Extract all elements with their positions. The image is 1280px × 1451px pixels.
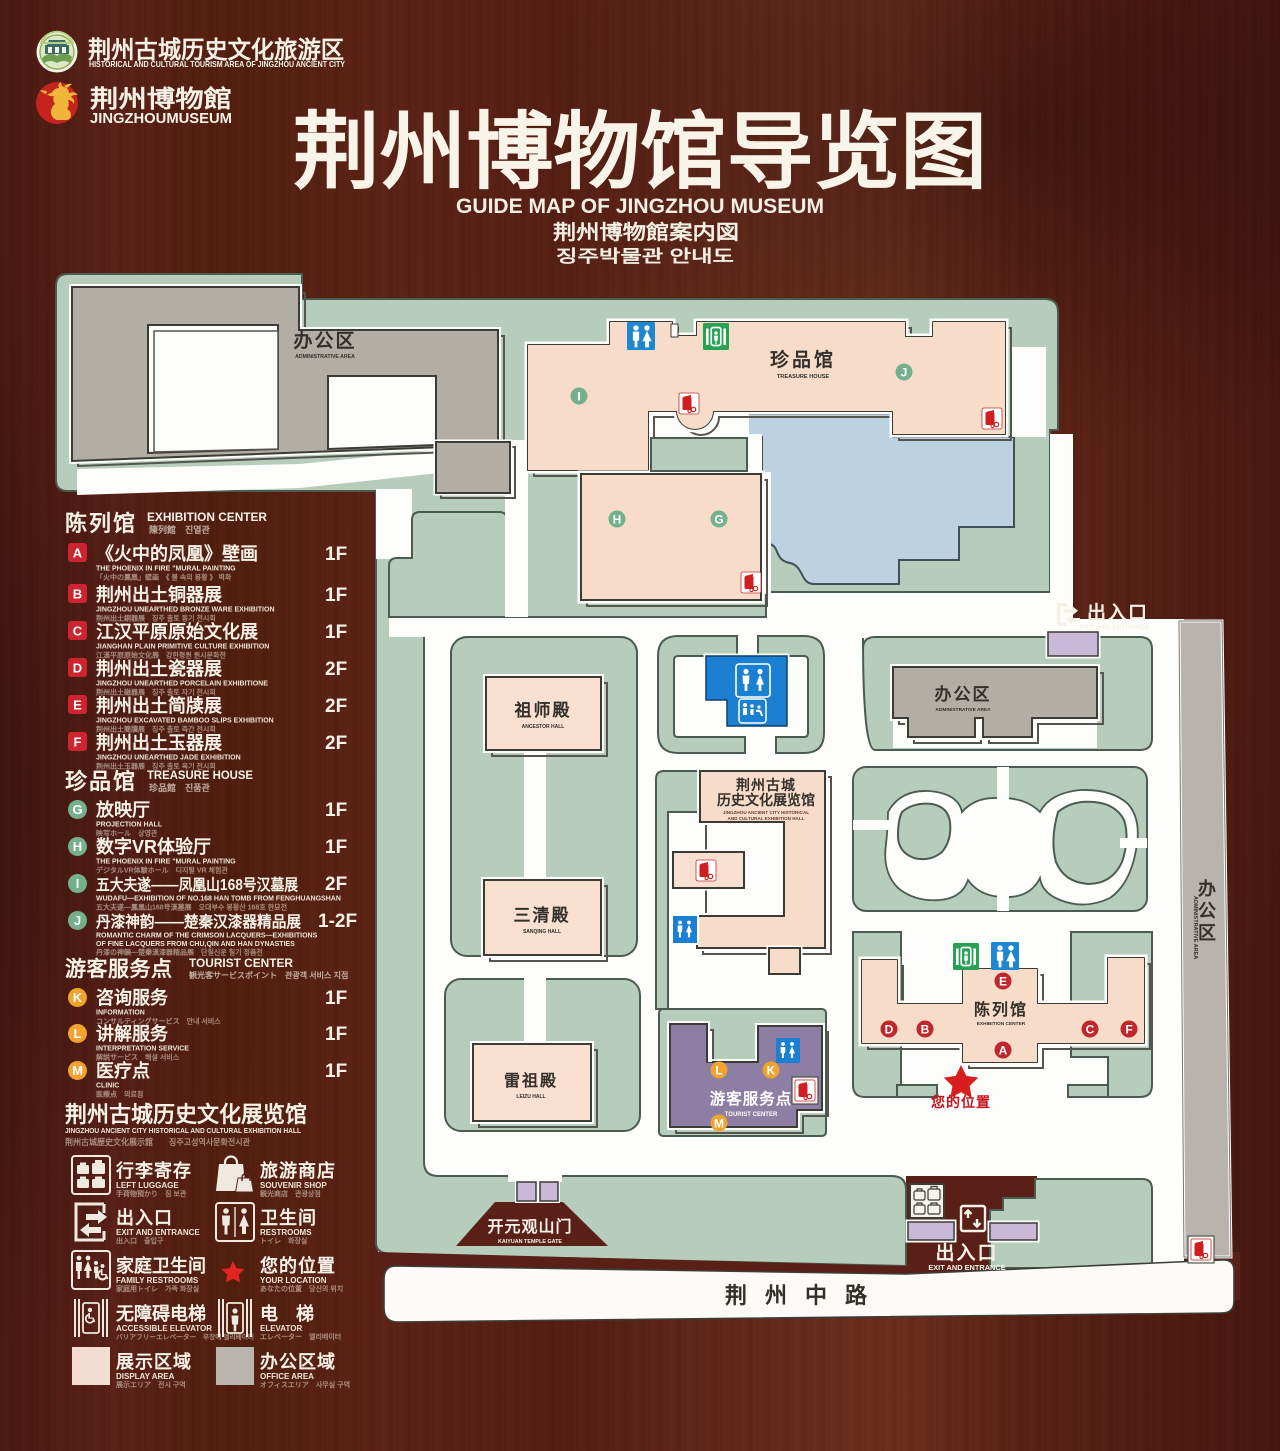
svg-text:丹漆神韵——楚秦汉漆器精品展: 丹漆神韵——楚秦汉漆器精品展 bbox=[96, 912, 301, 931]
svg-text:J: J bbox=[901, 366, 908, 380]
svg-text:2F: 2F bbox=[325, 696, 347, 717]
svg-text:1F: 1F bbox=[325, 622, 347, 643]
svg-text:JINGZHOU UNEARTHED PORCELAIN E: JINGZHOU UNEARTHED PORCELAIN EXHIBITIONE bbox=[96, 681, 268, 688]
svg-text:五大夫遂—鳳凰山168号漢墓展 오대부수 봉황산 168호: 五大夫遂—鳳凰山168号漢墓展 오대부수 봉황산 168호 한묘전 bbox=[96, 903, 287, 912]
svg-text:咨询服务: 咨询服务 bbox=[96, 987, 169, 1008]
svg-text:家庭用トイレ 가족 화장실: 家庭用トイレ 가족 화장실 bbox=[116, 1284, 199, 1293]
svg-text:THE PHOENIX IN FIRE "MURAL PAI: THE PHOENIX IN FIRE "MURAL PAINTING bbox=[96, 859, 236, 866]
svg-text:SOUVENIR SHOP: SOUVENIR SHOP bbox=[260, 1181, 327, 1190]
svg-text:荆州出土玉器展: 荆州出土玉器展 bbox=[96, 732, 223, 753]
svg-text:1F: 1F bbox=[325, 544, 347, 565]
svg-text:ACCESSIBLE ELEVATOR: ACCESSIBLE ELEVATOR bbox=[116, 1324, 212, 1333]
svg-text:A: A bbox=[999, 1044, 1008, 1058]
svg-text:D: D bbox=[73, 661, 82, 676]
svg-text:TREASURE HOUSE: TREASURE HOUSE bbox=[777, 374, 829, 380]
svg-text:游客服务点: 游客服务点 bbox=[65, 957, 173, 981]
svg-text:PROJECTION HALL: PROJECTION HALL bbox=[96, 822, 163, 829]
svg-text:K: K bbox=[767, 1064, 776, 1078]
svg-text:医疗点: 医疗点 bbox=[96, 1060, 150, 1081]
svg-text:荆州古城歴史文化展示館 징주고성역사문화전시관: 荆州古城歴史文化展示館 징주고성역사문화전시관 bbox=[65, 1137, 250, 1147]
svg-text:オフィスエリア 사무실 구역: オフィスエリア 사무실 구역 bbox=[260, 1380, 350, 1389]
svg-text:出入口: 出入口 bbox=[1087, 601, 1149, 624]
svg-text:DISPLAY AREA: DISPLAY AREA bbox=[116, 1372, 175, 1381]
svg-text:JINGZHOUMUSEUM: JINGZHOUMUSEUM bbox=[90, 111, 232, 127]
svg-text:CLINIC: CLINIC bbox=[96, 1083, 119, 1090]
svg-text:区: 区 bbox=[1198, 923, 1216, 943]
svg-text:JIANGHAN PLAIN PRIMITIVE CULTU: JIANGHAN PLAIN PRIMITIVE CULTURE EXHIBIT… bbox=[96, 644, 269, 651]
svg-text:出入口 출입구: 出入口 출입구 bbox=[116, 1236, 164, 1245]
svg-text:游客服务点: 游客服务点 bbox=[710, 1089, 793, 1108]
svg-text:办公区: 办公区 bbox=[935, 684, 992, 704]
svg-text:1F: 1F bbox=[325, 988, 347, 1009]
svg-text:INTERPRETATION SERVICE: INTERPRETATION SERVICE bbox=[96, 1046, 189, 1053]
svg-text:あなたの位置 당신의 위치: あなたの位置 당신의 위치 bbox=[260, 1284, 343, 1293]
svg-text:三清殿: 三清殿 bbox=[514, 905, 571, 925]
svg-text:D: D bbox=[885, 1023, 894, 1037]
svg-text:讲解服务: 讲解服务 bbox=[96, 1023, 169, 1044]
svg-text:EXIT AND ENTRANCE: EXIT AND ENTRANCE bbox=[116, 1228, 200, 1237]
svg-text:雷祖殿: 雷祖殿 bbox=[504, 1071, 558, 1090]
svg-text:観光商店 관광상점: 観光商店 관광상점 bbox=[260, 1189, 321, 1198]
svg-text:観光客サービスポイント 관광객 서비스 지점: 観光客サービスポイント 관광객 서비스 지점 bbox=[189, 970, 348, 980]
svg-text:行李寄存: 行李寄存 bbox=[115, 1160, 192, 1181]
svg-text:无障碍电梯: 无障碍电梯 bbox=[116, 1303, 206, 1324]
svg-text:历史文化展览馆: 历史文化展览馆 bbox=[717, 792, 815, 808]
svg-text:《火中的凤凰》壁画: 《火中的凤凰》壁画 bbox=[96, 543, 258, 564]
svg-text:INFORMATION: INFORMATION bbox=[96, 1010, 145, 1017]
svg-text:2F: 2F bbox=[325, 659, 347, 680]
svg-text:A: A bbox=[73, 546, 83, 561]
svg-text:开元观山门: 开元观山门 bbox=[487, 1217, 572, 1236]
svg-text:OFFICE AREA: OFFICE AREA bbox=[260, 1372, 314, 1381]
svg-text:JINGZHOU EXCAVATED BAMBOO SLIP: JINGZHOU EXCAVATED BAMBOO SLIPS EXHIBITI… bbox=[96, 718, 274, 725]
svg-text:2F: 2F bbox=[325, 874, 347, 895]
svg-text:YOUR LOCATION: YOUR LOCATION bbox=[260, 1276, 327, 1285]
svg-text:荆州古城历史文化展览馆: 荆州古城历史文化展览馆 bbox=[65, 1102, 307, 1127]
svg-text:G: G bbox=[714, 513, 723, 527]
svg-text:ROMANTIC CHARM OF THE CRIMSON: ROMANTIC CHARM OF THE CRIMSON LACQUERS—E… bbox=[96, 933, 318, 940]
svg-text:1F: 1F bbox=[325, 837, 347, 858]
svg-text:数字VR体验厅: 数字VR体验厅 bbox=[96, 836, 211, 857]
svg-text:「火中の鳳凰」壁画 《 불 속의 봉황 》 벽화: 「火中の鳳凰」壁画 《 불 속의 봉황 》 벽화 bbox=[96, 573, 232, 582]
svg-text:ANCESTOR HALL: ANCESTOR HALL bbox=[522, 724, 565, 730]
svg-text:EXHIBITION CENTER: EXHIBITION CENTER bbox=[977, 1021, 1026, 1027]
svg-text:K: K bbox=[73, 990, 83, 1005]
svg-text:B: B bbox=[73, 587, 82, 602]
svg-text:电 梯: 电 梯 bbox=[260, 1303, 314, 1324]
svg-text:珍品館 진품관: 珍品館 진품관 bbox=[149, 782, 211, 793]
svg-text:ELEVATOR: ELEVATOR bbox=[260, 1324, 302, 1333]
svg-text:TREASURE HOUSE: TREASURE HOUSE bbox=[147, 768, 253, 782]
svg-text:H: H bbox=[73, 839, 82, 854]
svg-text:陈列馆: 陈列馆 bbox=[65, 511, 137, 536]
svg-text:荆州博物館案内図: 荆州博物館案内図 bbox=[553, 220, 739, 244]
svg-text:FAMILY RESTROOMS: FAMILY RESTROOMS bbox=[116, 1276, 199, 1285]
svg-text:JINGZHOU ANCIENT CITY HISTORIC: JINGZHOU ANCIENT CITY HISTORICAL bbox=[723, 810, 809, 815]
svg-text:荆州古城: 荆州古城 bbox=[736, 777, 796, 793]
svg-text:EXHIBITION CENTER: EXHIBITION CENTER bbox=[147, 510, 267, 524]
svg-text:E: E bbox=[999, 975, 1007, 989]
svg-text:江汉平原原始文化展: 江汉平原原始文化展 bbox=[96, 621, 259, 642]
svg-text:E: E bbox=[73, 698, 82, 713]
svg-text:J: J bbox=[74, 913, 81, 928]
svg-text:荆州中路: 荆州中路 bbox=[725, 1283, 885, 1308]
svg-text:EXIT AND ENTRANCE: EXIT AND ENTRANCE bbox=[928, 1263, 1005, 1272]
svg-text:家庭卫生间: 家庭卫生间 bbox=[116, 1255, 206, 1276]
svg-text:卫生间: 卫生间 bbox=[260, 1207, 317, 1228]
svg-text:JINGZHOU UNEARTHED JADE EXHIBI: JINGZHOU UNEARTHED JADE EXHIBITION bbox=[96, 755, 241, 762]
svg-text:珍品馆: 珍品馆 bbox=[770, 348, 836, 371]
svg-text:放映厅: 放映厅 bbox=[95, 799, 150, 820]
svg-text:THE PHOENIX IN FIRE "MURAL PAI: THE PHOENIX IN FIRE "MURAL PAINTING bbox=[96, 566, 236, 573]
svg-text:ADMINISTRATIVE AREA: ADMINISTRATIVE AREA bbox=[935, 707, 991, 713]
svg-text:LEFT LUGGAGE: LEFT LUGGAGE bbox=[116, 1181, 179, 1190]
svg-text:展示エリア 전시 구역: 展示エリア 전시 구역 bbox=[115, 1380, 186, 1389]
svg-text:旅游商店: 旅游商店 bbox=[260, 1160, 336, 1181]
svg-text:荆州博物館: 荆州博物館 bbox=[90, 85, 232, 113]
svg-text:I: I bbox=[76, 876, 80, 891]
svg-text:EXIT AND ENTRANCE: EXIT AND ENTRANCE bbox=[1080, 624, 1150, 631]
svg-text:1F: 1F bbox=[325, 1061, 347, 1082]
svg-text:祖师殿: 祖师殿 bbox=[514, 700, 572, 720]
svg-text:エレベーター 엘리베이터: エレベーター 엘리베이터 bbox=[260, 1332, 341, 1341]
svg-text:M: M bbox=[714, 1117, 724, 1131]
svg-text:出入口: 出入口 bbox=[116, 1207, 173, 1228]
svg-text:公: 公 bbox=[1198, 901, 1216, 921]
svg-text:LEIZU HALL: LEIZU HALL bbox=[516, 1094, 545, 1100]
svg-text:展示区域: 展示区域 bbox=[116, 1351, 192, 1372]
svg-text:GUIDE MAP OF JINGZHOU MUSEUM: GUIDE MAP OF JINGZHOU MUSEUM bbox=[456, 194, 824, 218]
svg-text:L: L bbox=[74, 1026, 82, 1041]
svg-text:荆州博物馆导览图: 荆州博物馆导览图 bbox=[293, 105, 987, 199]
svg-text:ADMINISTRATIVE AREA: ADMINISTRATIVE AREA bbox=[295, 354, 355, 360]
svg-text:H: H bbox=[613, 513, 622, 527]
svg-text:F: F bbox=[1125, 1023, 1132, 1037]
svg-text:您的位置: 您的位置 bbox=[260, 1255, 336, 1276]
svg-text:办: 办 bbox=[1198, 878, 1216, 899]
svg-text:RESTROOMS: RESTROOMS bbox=[260, 1228, 312, 1237]
svg-text:1F: 1F bbox=[325, 1024, 347, 1045]
svg-text:M: M bbox=[72, 1063, 83, 1078]
svg-text:OF FINE LACQUERS FROM CHU,QIN: OF FINE LACQUERS FROM CHU,QIN AND HAN DY… bbox=[96, 941, 295, 948]
svg-text:陈列馆: 陈列馆 bbox=[974, 1000, 1028, 1019]
svg-text:SANQING HALL: SANQING HALL bbox=[523, 929, 561, 935]
svg-text:出入口: 出入口 bbox=[935, 1241, 998, 1264]
svg-text:JINGZHOU ANCIENT CITY HISTORIC: JINGZHOU ANCIENT CITY HISTORICAL AND CUL… bbox=[65, 1126, 301, 1135]
svg-text:トイレ 화장실: トイレ 화장실 bbox=[260, 1236, 307, 1245]
svg-text:AND CULTURAL EXHIBITION HALL: AND CULTURAL EXHIBITION HALL bbox=[728, 816, 805, 821]
svg-text:五大夫遂——凤凰山168号汉墓展: 五大夫遂——凤凰山168号汉墓展 bbox=[96, 875, 298, 894]
svg-text:JINGZHOU UNEARTHED BRONZE WARE: JINGZHOU UNEARTHED BRONZE WARE EXHIBITIO… bbox=[96, 607, 275, 614]
svg-text:F: F bbox=[74, 735, 82, 750]
svg-text:デジタルVR体験ホール 디지털 VR 체험관: デジタルVR体験ホール 디지털 VR 체험관 bbox=[96, 866, 228, 875]
svg-text:办公区: 办公区 bbox=[293, 329, 356, 352]
svg-text:L: L bbox=[715, 1064, 722, 1078]
svg-text:TOURIST CENTER: TOURIST CENTER bbox=[725, 1112, 778, 1118]
svg-text:珍品馆: 珍品馆 bbox=[65, 769, 137, 794]
svg-text:B: B bbox=[921, 1023, 930, 1037]
svg-text:C: C bbox=[1086, 1023, 1095, 1037]
svg-text:HISTORICAL AND CULTURAL TOURIS: HISTORICAL AND CULTURAL TOURISM AREA OF … bbox=[89, 60, 345, 69]
svg-text:ADMINISTRATIVE AREA: ADMINISTRATIVE AREA bbox=[1192, 896, 1198, 959]
svg-text:I: I bbox=[577, 390, 580, 404]
svg-text:2F: 2F bbox=[325, 733, 347, 754]
svg-text:1-2F: 1-2F bbox=[318, 911, 357, 932]
svg-text:KAIYUAN TEMPLE GATE: KAIYUAN TEMPLE GATE bbox=[498, 1239, 562, 1245]
svg-text:荆州出土简牍展: 荆州出土简牍展 bbox=[96, 695, 223, 716]
svg-text:징주박물관 안내도: 징주박물관 안내도 bbox=[556, 247, 734, 266]
svg-text:荆州出土瓷器展: 荆州出土瓷器展 bbox=[96, 658, 223, 679]
svg-text:G: G bbox=[72, 802, 82, 817]
svg-text:办公区域: 办公区域 bbox=[260, 1351, 336, 1372]
svg-text:手荷物預かり 짐 보관: 手荷物預かり 짐 보관 bbox=[116, 1189, 187, 1198]
svg-text:WUDAFU—EXHIBITION OF NO.168 HA: WUDAFU—EXHIBITION OF NO.168 HAN TOMB FRO… bbox=[96, 896, 341, 903]
svg-text:陳列館 진열관: 陳列館 진열관 bbox=[149, 524, 211, 535]
svg-text:C: C bbox=[73, 624, 83, 639]
svg-text:荆州出土铜器展: 荆州出土铜器展 bbox=[96, 584, 223, 605]
svg-text:1F: 1F bbox=[325, 800, 347, 821]
svg-text:TOURIST CENTER: TOURIST CENTER bbox=[189, 956, 293, 970]
svg-text:医療点 의료점: 医療点 의료점 bbox=[96, 1090, 143, 1099]
svg-text:您的位置: 您的位置 bbox=[931, 1094, 991, 1110]
svg-text:1F: 1F bbox=[325, 585, 347, 606]
